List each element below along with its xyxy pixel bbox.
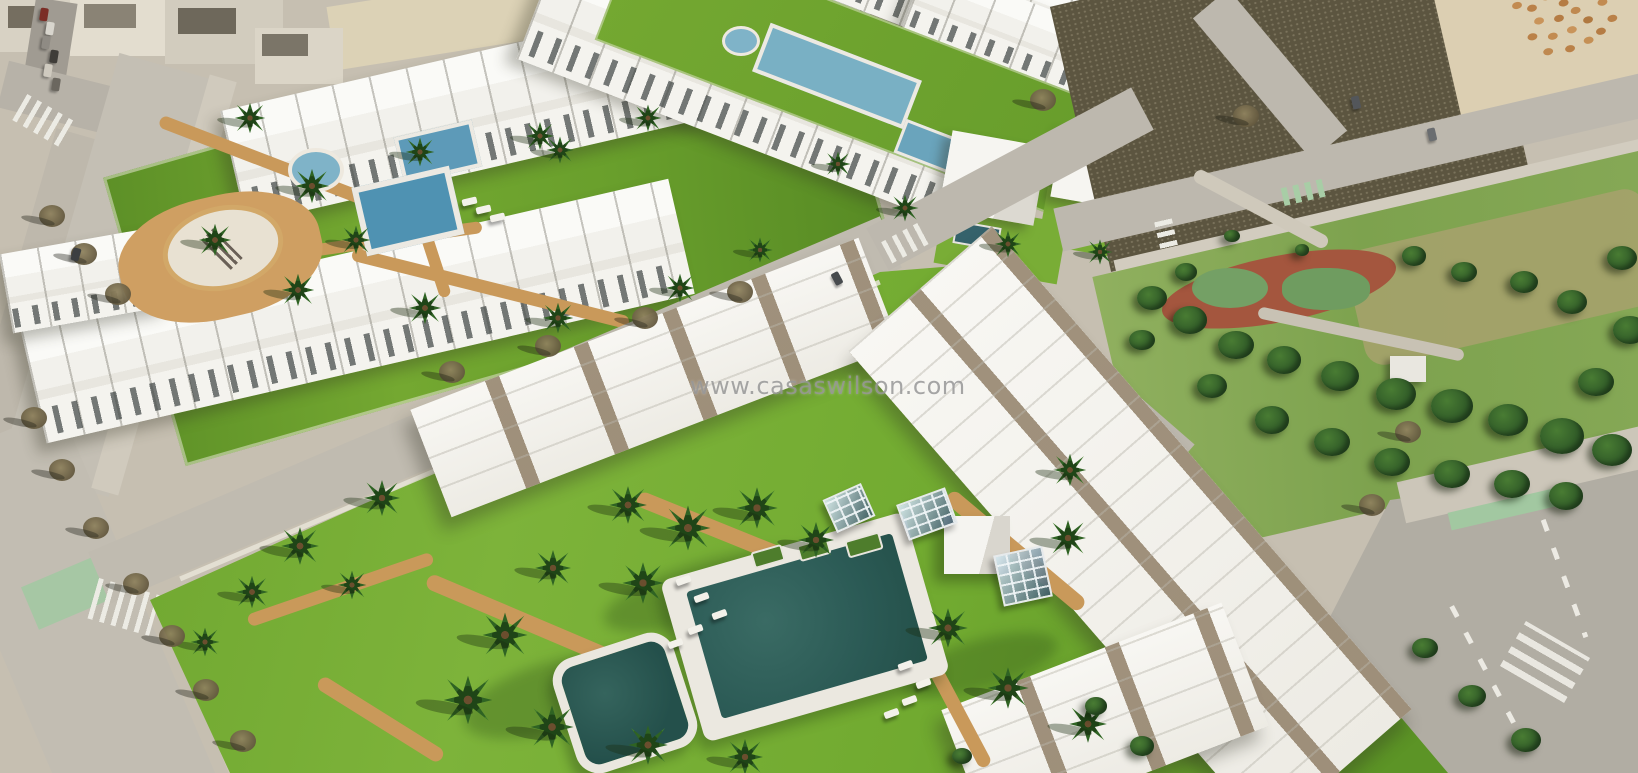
palm-tree xyxy=(1087,239,1112,264)
palm-tree xyxy=(483,613,528,658)
pine-tree xyxy=(1613,316,1638,343)
roadside-tree xyxy=(230,730,256,752)
roadside-tree xyxy=(123,573,149,595)
town-roof xyxy=(178,8,236,34)
roadside-tree xyxy=(439,361,465,383)
palm-tree xyxy=(928,608,968,648)
playground-court-green xyxy=(1192,268,1268,308)
roadside-tree xyxy=(1233,105,1259,127)
roadside-tree xyxy=(49,459,75,481)
palm-tree xyxy=(364,480,400,516)
roadside-tree xyxy=(159,625,185,647)
pine-tree xyxy=(1434,460,1470,489)
palm-tree xyxy=(747,237,772,262)
palm-tree xyxy=(609,486,647,524)
palm-tree xyxy=(281,527,319,565)
aerial-render-scene: www.casaswilson.com xyxy=(0,0,1638,773)
pine-tree xyxy=(1488,404,1528,436)
palm-tree xyxy=(444,676,493,725)
dev2-fountain-pool xyxy=(722,26,760,56)
palm-tree xyxy=(1050,520,1086,556)
roadside-tree xyxy=(105,283,131,305)
town-roof xyxy=(262,34,308,56)
pine-tree xyxy=(1402,246,1426,265)
pine-tree xyxy=(1130,736,1154,755)
palm-tree xyxy=(666,274,695,303)
pine-tree xyxy=(1578,368,1614,397)
pine-tree xyxy=(1197,374,1227,398)
roadside-tree xyxy=(39,205,65,227)
pine-tree xyxy=(1549,482,1583,509)
palm-tree xyxy=(628,725,668,765)
palm-tree xyxy=(295,169,329,203)
pine-tree xyxy=(1267,346,1301,373)
palm-tree xyxy=(825,151,850,176)
pine-tree xyxy=(1540,418,1584,453)
palm-tree xyxy=(622,562,663,603)
roadside-tree xyxy=(1030,89,1056,111)
palm-tree xyxy=(798,522,834,558)
pine-tree xyxy=(1494,470,1530,499)
palm-tree xyxy=(995,231,1022,258)
pine-tree xyxy=(1592,434,1632,466)
palm-tree xyxy=(342,226,371,255)
pine-tree xyxy=(1431,389,1473,423)
pine-tree xyxy=(1218,331,1254,360)
roadside-tree xyxy=(193,679,219,701)
palm-tree xyxy=(409,292,441,324)
glass-trellis xyxy=(993,545,1053,606)
palm-tree xyxy=(535,550,571,586)
palm-tree xyxy=(987,667,1028,708)
palm-tree xyxy=(199,224,231,256)
pine-tree xyxy=(1175,263,1197,281)
pine-tree xyxy=(1321,361,1359,391)
palm-tree xyxy=(1054,454,1086,486)
pine-tree xyxy=(1511,728,1541,752)
playground-court-green xyxy=(1282,268,1370,310)
palm-tree xyxy=(406,138,435,167)
palm-tree xyxy=(235,103,266,134)
pine-tree xyxy=(1314,428,1350,457)
pine-tree xyxy=(1137,286,1167,310)
palm-tree xyxy=(547,137,574,164)
palm-tree xyxy=(236,576,268,608)
pine-tree xyxy=(952,748,972,764)
pine-tree xyxy=(1255,406,1289,433)
roadside-tree xyxy=(1395,421,1421,443)
pine-tree xyxy=(1557,290,1587,314)
roadside-tree xyxy=(632,307,658,329)
pine-tree xyxy=(1458,685,1486,707)
pine-tree xyxy=(1295,244,1309,255)
palm-tree xyxy=(543,303,574,334)
roadside-tree xyxy=(21,407,47,429)
roadside-tree xyxy=(1359,494,1385,516)
town-roof xyxy=(84,4,136,28)
palm-tree xyxy=(338,571,367,600)
palm-tree xyxy=(892,195,919,222)
palm-tree xyxy=(635,105,662,132)
pine-tree xyxy=(1173,306,1207,333)
palm-tree xyxy=(282,274,314,306)
roadside-tree xyxy=(83,517,109,539)
pine-tree xyxy=(1376,378,1416,410)
palm-tree xyxy=(530,705,573,748)
pine-tree xyxy=(1085,697,1107,715)
palm-tree xyxy=(191,628,220,657)
watermark-text: www.casaswilson.com xyxy=(690,372,966,400)
roadside-tree xyxy=(727,281,753,303)
palm-tree xyxy=(666,506,711,551)
palm-tree xyxy=(727,739,763,773)
palm-tree xyxy=(736,487,777,528)
pine-tree xyxy=(1374,448,1410,477)
pine-tree xyxy=(1607,246,1637,270)
pine-tree xyxy=(1510,271,1538,293)
roadside-tree xyxy=(535,335,561,357)
